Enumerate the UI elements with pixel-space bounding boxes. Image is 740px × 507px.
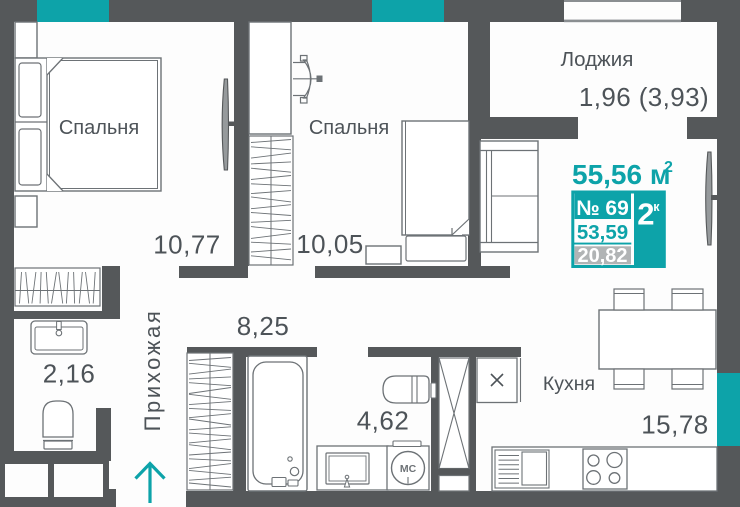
svg-text:№ 69: № 69: [576, 197, 629, 220]
svg-text:Прихожая: Прихожая: [140, 309, 165, 432]
svg-text:Кухня: Кухня: [543, 373, 595, 395]
svg-text:10,05: 10,05: [296, 229, 364, 259]
svg-text:Лоджия: Лоджия: [561, 48, 634, 71]
svg-text:2,16: 2,16: [43, 359, 96, 389]
svg-text:20,82: 20,82: [577, 245, 627, 267]
svg-text:Спальня: Спальня: [59, 117, 139, 139]
svg-text:МС: МС: [400, 463, 417, 475]
svg-text:53,59: 53,59: [577, 221, 628, 244]
svg-text:55,56 м: 55,56 м: [572, 159, 671, 190]
svg-text:1,96 (3,93): 1,96 (3,93): [579, 82, 709, 112]
svg-text:Спальня: Спальня: [309, 117, 389, 139]
svg-text:10,77: 10,77: [153, 230, 221, 260]
svg-text:2: 2: [637, 197, 654, 232]
svg-text:4,62: 4,62: [357, 406, 410, 436]
svg-text:15,78: 15,78: [641, 410, 709, 440]
svg-text:8,25: 8,25: [237, 311, 290, 341]
svg-text:к: к: [653, 200, 660, 214]
svg-text:2: 2: [664, 159, 673, 176]
